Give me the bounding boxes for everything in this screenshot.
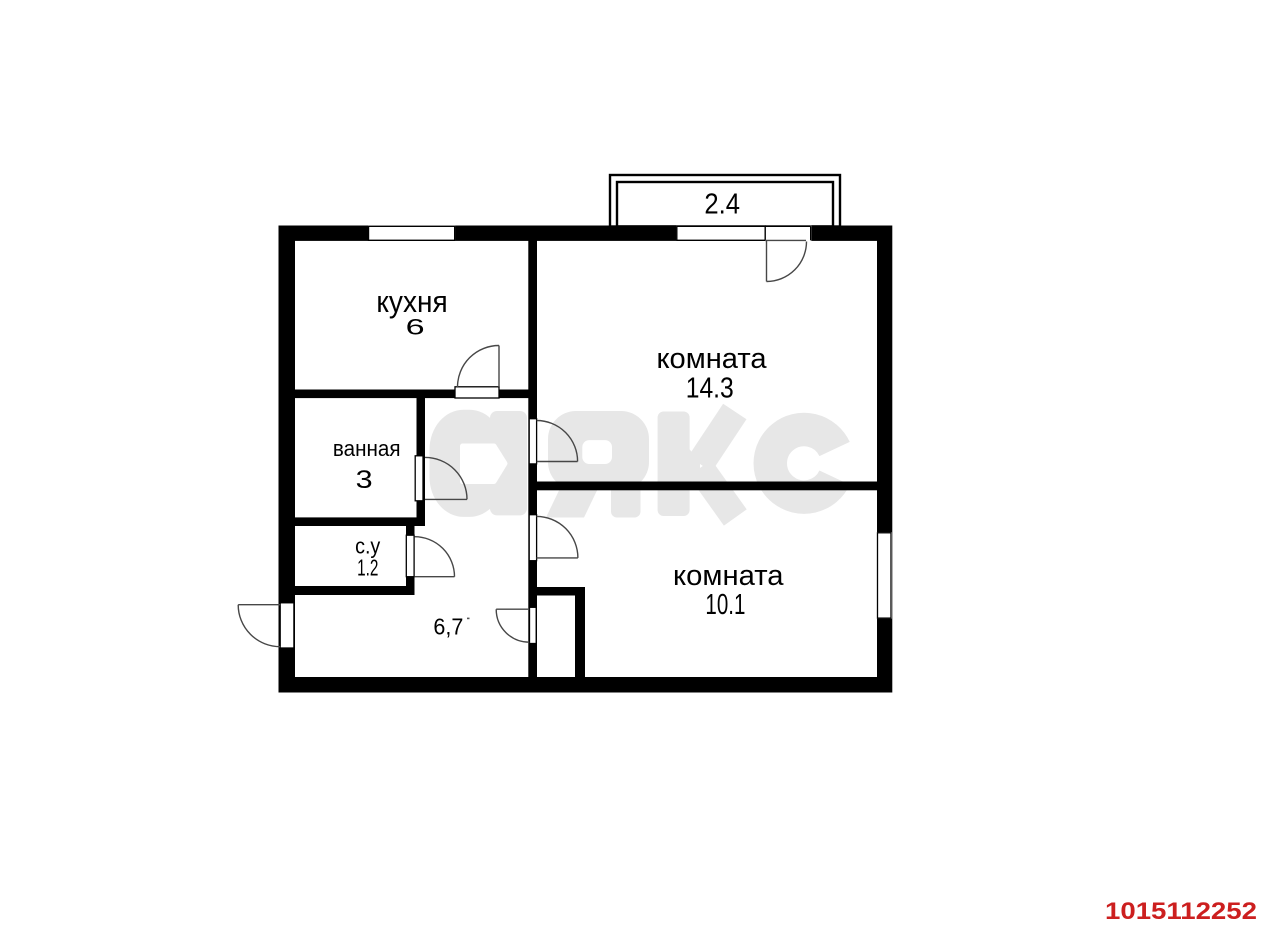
svg-text:3: 3 — [356, 466, 373, 494]
svg-text:10.1: 10.1 — [705, 589, 745, 621]
svg-text:2.4: 2.4 — [704, 188, 740, 220]
svg-text:1.2: 1.2 — [357, 555, 378, 581]
svg-text:6: 6 — [406, 314, 425, 339]
svg-text:1015112252: 1015112252 — [1105, 899, 1257, 925]
svg-text:14.3: 14.3 — [686, 372, 734, 404]
svg-text:комната: комната — [673, 560, 784, 592]
svg-text:ванная: ванная — [333, 436, 401, 461]
svg-text:6,7: 6,7 — [433, 613, 463, 639]
svg-text:комната: комната — [657, 343, 768, 375]
